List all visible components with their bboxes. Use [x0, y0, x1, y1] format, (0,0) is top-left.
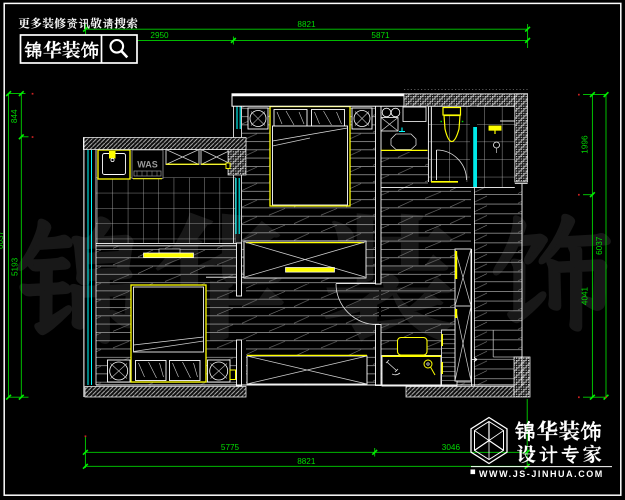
svg-text:5775: 5775: [221, 443, 240, 452]
svg-text:2950: 2950: [150, 31, 169, 40]
svg-text:5871: 5871: [371, 31, 390, 40]
svg-text:1996: 1996: [580, 135, 589, 154]
svg-text:5193: 5193: [11, 257, 20, 276]
svg-text:3046: 3046: [442, 443, 461, 452]
svg-text:WAS: WAS: [137, 160, 158, 170]
svg-text:8821: 8821: [297, 457, 316, 466]
svg-text:6037: 6037: [595, 236, 604, 255]
svg-text:844: 844: [10, 109, 19, 123]
svg-text:WWW.JS-JINHUA.COM: WWW.JS-JINHUA.COM: [479, 469, 604, 479]
svg-text:8821: 8821: [297, 20, 316, 29]
svg-text:4041: 4041: [580, 286, 589, 305]
